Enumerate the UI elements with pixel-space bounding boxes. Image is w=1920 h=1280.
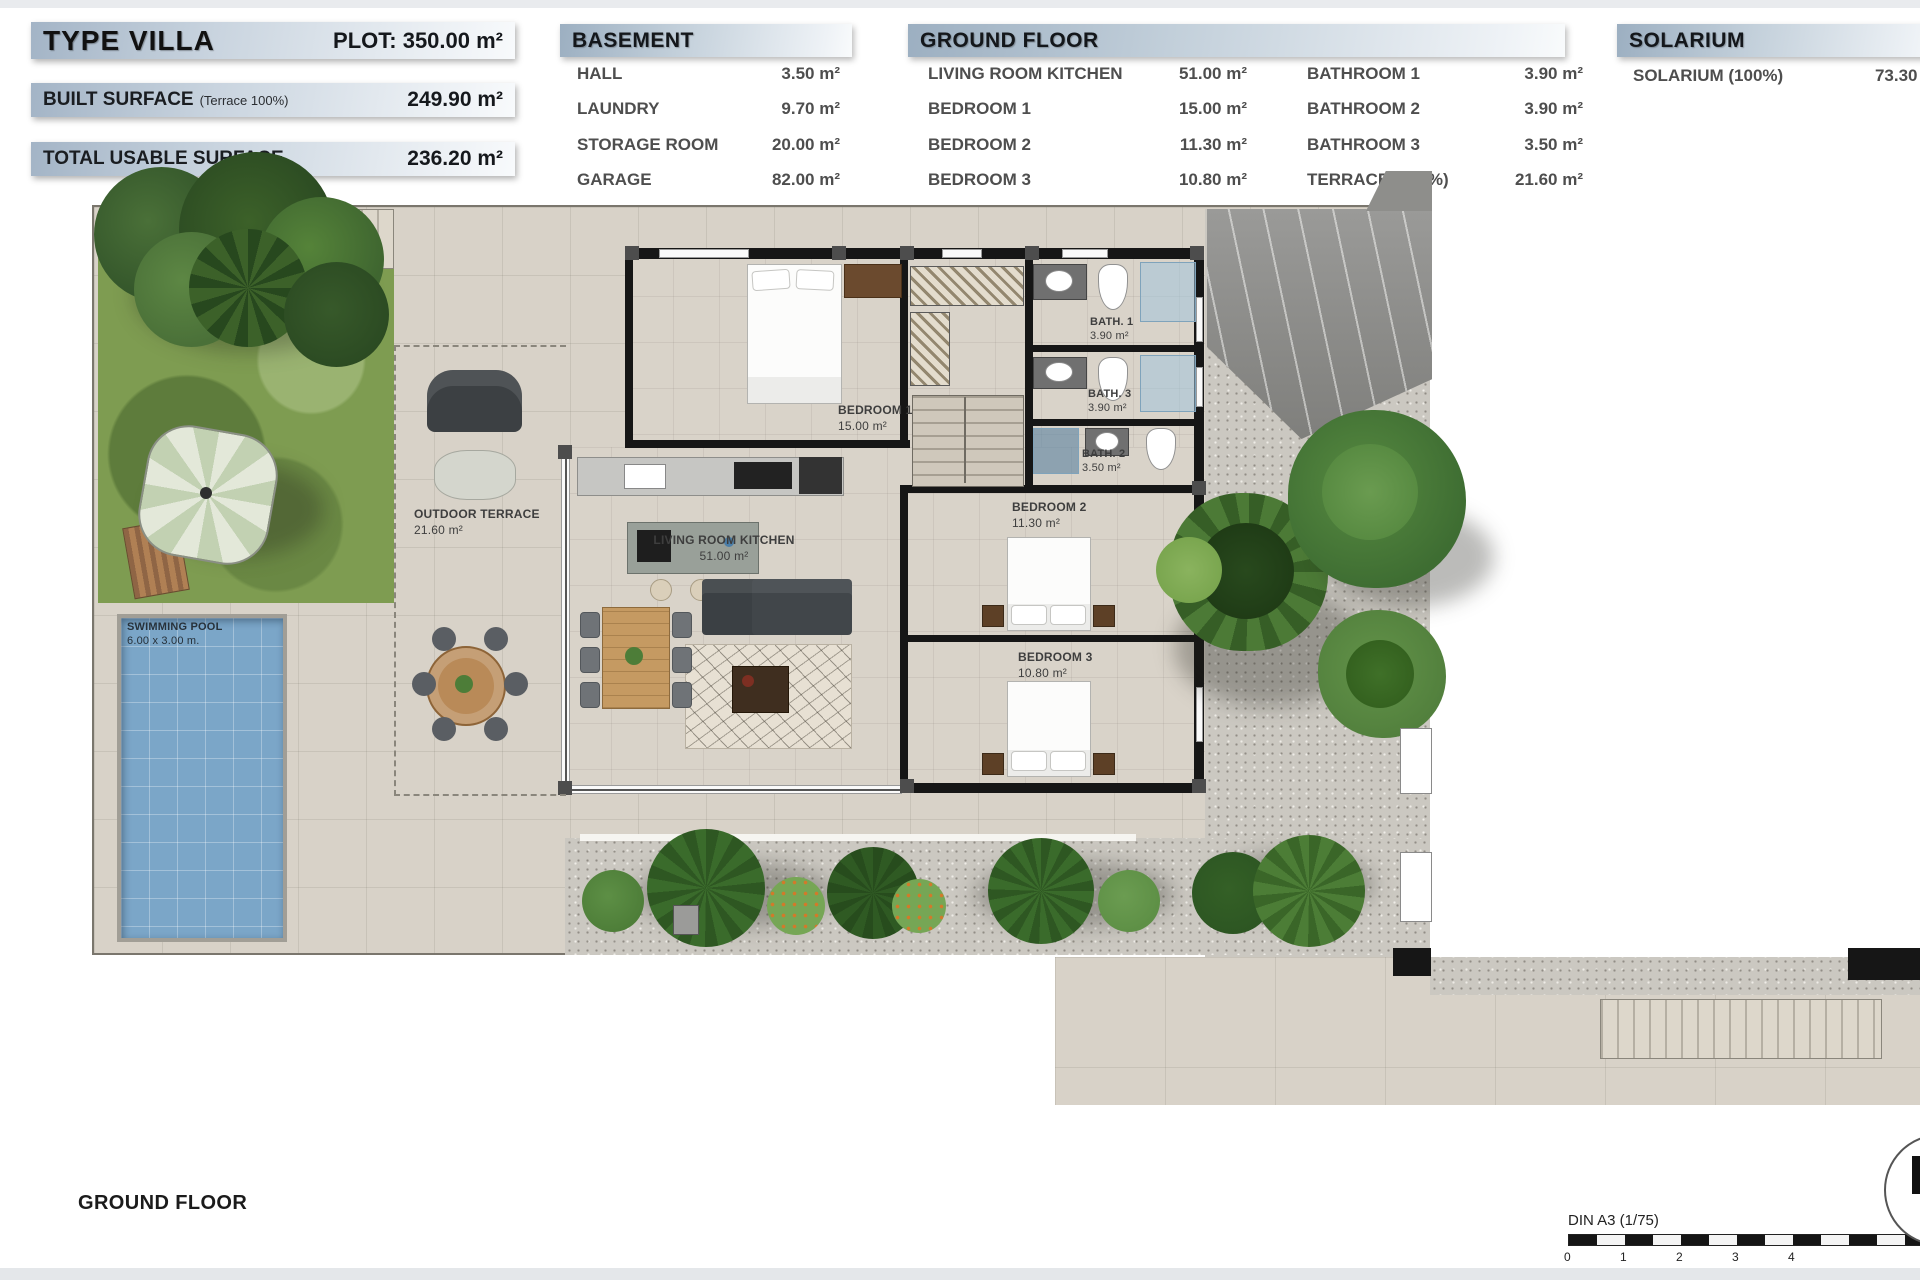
bush: [582, 870, 644, 932]
entry-steps: [1600, 999, 1882, 1059]
table-row: BEDROOM 115.00 m²: [928, 99, 1247, 119]
pillow: [796, 269, 835, 291]
usable-surface-value: 236.20 m²: [407, 147, 503, 171]
top-edge-band: [0, 0, 1920, 8]
flowering-shrub: [892, 879, 946, 933]
glass-wall-south-line: [569, 789, 902, 791]
ground-floor-table-right: BATHROOM 13.90 m² BATHROOM 23.90 m² BATH…: [1307, 64, 1583, 190]
pillow: [1050, 605, 1086, 625]
flowering-shrub: [767, 877, 825, 935]
window-east-1: [1196, 297, 1203, 342]
summary-bar-built: BUILT SURFACE (Terrace 100%) 249.90 m²: [31, 83, 515, 117]
nightstand: [982, 753, 1004, 775]
bush: [988, 838, 1094, 944]
table-row: HALL3.50 m²: [577, 64, 840, 84]
scale-label: DIN A3 (1/75): [1568, 1212, 1659, 1229]
table-row: BATHROOM 33.50 m²: [1307, 135, 1583, 155]
site-plan: SWIMMING POOL6.00 x 3.00 m.: [92, 205, 1430, 955]
page-title: GROUND FLOOR: [78, 1192, 247, 1215]
pillar: [900, 246, 914, 260]
window-east-2: [1196, 367, 1203, 407]
palm-bush: [1253, 835, 1365, 947]
shower: [1140, 262, 1196, 322]
wall-west-bedroom1: [625, 248, 633, 448]
chair: [672, 647, 692, 673]
pillar: [832, 246, 846, 260]
north-indicator-needle: [1912, 1156, 1920, 1194]
pillar: [1192, 481, 1206, 495]
table-row: GARAGE82.00 m²: [577, 170, 840, 190]
pillow: [751, 269, 790, 292]
street-gravel: [1430, 957, 1920, 995]
staircase: [912, 395, 1024, 487]
bottom-edge-band: [0, 1268, 1920, 1280]
outdoor-pouf: [434, 450, 516, 500]
room-label-pool: SWIMMING POOL6.00 x 3.00 m.: [127, 620, 222, 649]
utility-box: [673, 905, 699, 935]
chair: [504, 672, 528, 696]
scale-tick: 0: [1564, 1250, 1571, 1264]
room-label-terrace: OUTDOOR TERRACE21.60 m²: [414, 507, 540, 538]
sofa: [702, 579, 852, 635]
pillow: [1011, 605, 1047, 625]
pillow: [1011, 751, 1047, 771]
chair: [432, 717, 456, 741]
coffee-table: [732, 666, 789, 713]
window-bath1: [1062, 249, 1108, 258]
pillar: [1025, 246, 1039, 260]
table-row: BATHROOM 13.90 m²: [1307, 64, 1583, 84]
scale-tick: 1: [1620, 1250, 1627, 1264]
built-surface-label: BUILT SURFACE: [43, 89, 194, 111]
table-decor: [742, 675, 754, 687]
window-hall: [942, 249, 982, 258]
tree: [1322, 444, 1418, 540]
ground-floor-table-header: GROUND FLOOR: [908, 24, 1565, 57]
bush: [1098, 870, 1160, 932]
wall-bedroom2-bedroom3: [900, 635, 1202, 642]
table-row: BATHROOM 23.90 m²: [1307, 99, 1583, 119]
plant-centerpiece: [455, 675, 473, 693]
room-label-bath2: BATH. 23.50 m²: [1082, 447, 1125, 476]
chair: [412, 672, 436, 696]
table-row: STORAGE ROOM20.00 m²: [577, 135, 840, 155]
sink-basin: [1045, 362, 1073, 382]
pillar: [1190, 246, 1204, 260]
boundary-wall: [1393, 948, 1431, 976]
room-label-bath3: BATH. 33.90 m²: [1088, 387, 1131, 416]
pillar: [625, 246, 639, 260]
wardrobe: [910, 266, 1024, 306]
sink-basin: [1045, 270, 1073, 292]
scale-tick: 2: [1676, 1250, 1683, 1264]
street-pavement: [1055, 957, 1920, 1105]
window-bedroom3: [1196, 687, 1203, 742]
chair: [484, 627, 508, 651]
shower: [1033, 428, 1079, 474]
wall-wing-south: [900, 783, 1204, 793]
nightstand: [1093, 753, 1115, 775]
built-surface-note: (Terrace 100%): [200, 93, 289, 108]
kitchen-sink: [624, 464, 666, 489]
chair: [580, 682, 600, 708]
room-label-bath1: BATH. 13.90 m²: [1090, 315, 1133, 344]
scale-tick: 4: [1788, 1250, 1795, 1264]
basement-table-header: BASEMENT: [560, 24, 852, 57]
wall-hall-bath: [1025, 248, 1033, 492]
wall-bath3-bath2: [1025, 419, 1204, 426]
parasol-pole: [200, 487, 212, 499]
room-label-bedroom1: BEDROOM 115.00 m²: [838, 403, 912, 434]
table-row: SOLARIUM (100%)73.30 m²: [1633, 66, 1920, 86]
plant-centerpiece: [625, 647, 643, 665]
outdoor-sofa: [427, 370, 522, 432]
tree: [1156, 537, 1222, 603]
gate: [1400, 852, 1432, 922]
scale-tick: 3: [1732, 1250, 1739, 1264]
plot-value: PLOT: 350.00 m²: [333, 28, 503, 54]
nightstand: [1093, 605, 1115, 627]
stove: [734, 462, 792, 489]
scale-bar: [1568, 1234, 1920, 1246]
tree: [1346, 640, 1414, 708]
nightstand: [982, 605, 1004, 627]
ground-floor-table-left: LIVING ROOM KITCHEN51.00 m² BEDROOM 115.…: [928, 64, 1247, 190]
wall-bath1-bath3: [1025, 345, 1204, 352]
basement-table: HALL3.50 m² LAUNDRY9.70 m² STORAGE ROOM2…: [577, 64, 840, 190]
type-villa-label: TYPE VILLA: [43, 25, 215, 57]
window-bedroom1: [659, 249, 749, 258]
pillow: [1050, 751, 1086, 771]
chair: [580, 647, 600, 673]
table-row: BEDROOM 211.30 m²: [928, 135, 1247, 155]
chair: [484, 717, 508, 741]
floorplan-page: TYPE VILLA PLOT: 350.00 m² BUILT SURFACE…: [0, 0, 1920, 1280]
room-label-living: LIVING ROOM KITCHEN51.00 m²: [639, 533, 809, 564]
stool: [650, 579, 672, 601]
boundary-wall: [1848, 948, 1920, 980]
gate: [1400, 728, 1432, 794]
built-surface-value: 249.90 m²: [407, 88, 503, 112]
bush: [647, 829, 765, 947]
pillar: [900, 779, 914, 793]
summary-bar-type: TYPE VILLA PLOT: 350.00 m²: [31, 22, 515, 59]
swimming-pool: [117, 614, 287, 942]
staircase-rail: [964, 397, 966, 483]
room-label-bedroom3: BEDROOM 310.80 m²: [1018, 650, 1092, 681]
solarium-table-header: SOLARIUM: [1617, 24, 1920, 57]
pillar: [1192, 779, 1206, 793]
room-label-bedroom2: BEDROOM 211.30 m²: [1012, 500, 1086, 531]
table-row: LIVING ROOM KITCHEN51.00 m²: [928, 64, 1247, 84]
chair: [672, 612, 692, 638]
kitchen-appliance: [799, 457, 842, 494]
table-row: LAUNDRY9.70 m²: [577, 99, 840, 119]
desk: [844, 264, 902, 298]
chair: [432, 627, 456, 651]
wall-bedroom1-south: [625, 440, 910, 448]
chair: [580, 612, 600, 638]
table-row: BEDROOM 310.80 m²: [928, 170, 1247, 190]
solarium-table: SOLARIUM (100%)73.30 m²: [1633, 66, 1920, 88]
chair: [672, 682, 692, 708]
wardrobe: [910, 312, 950, 386]
table-row: TERRACE (100%)21.60 m²: [1307, 170, 1583, 190]
shower: [1140, 355, 1196, 412]
tree: [284, 262, 389, 367]
